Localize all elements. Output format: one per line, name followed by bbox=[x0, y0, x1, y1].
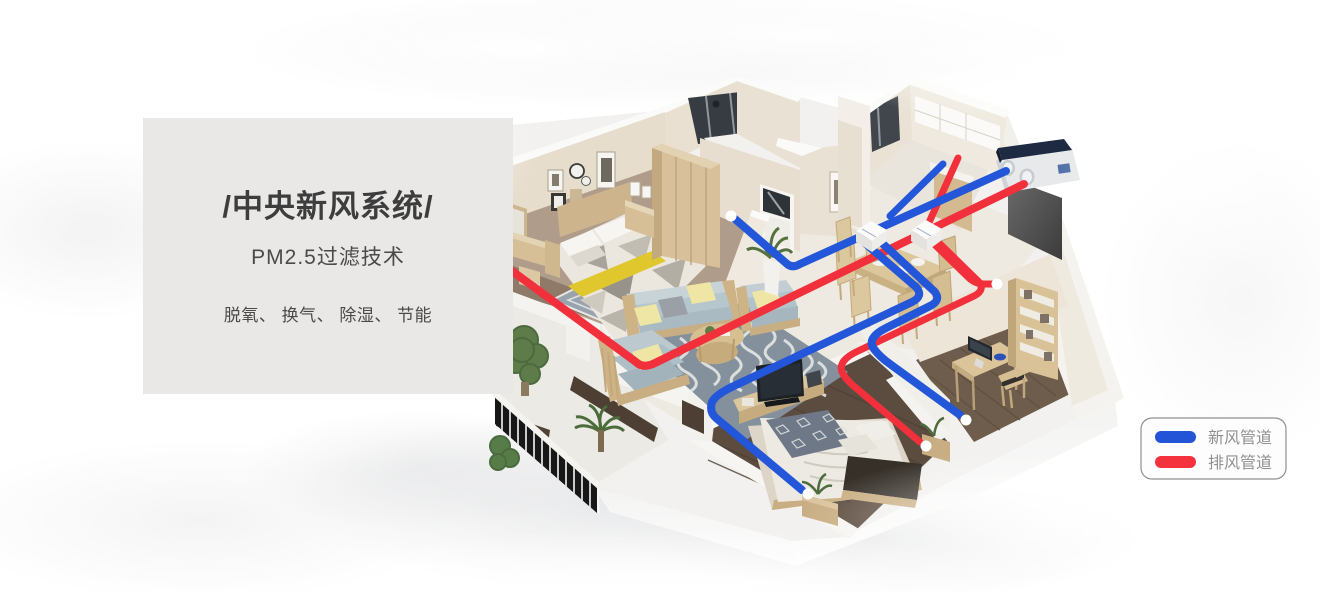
svg-text:排风管道: 排风管道 bbox=[1208, 454, 1272, 472]
svg-text:新风管道: 新风管道 bbox=[1208, 429, 1272, 447]
